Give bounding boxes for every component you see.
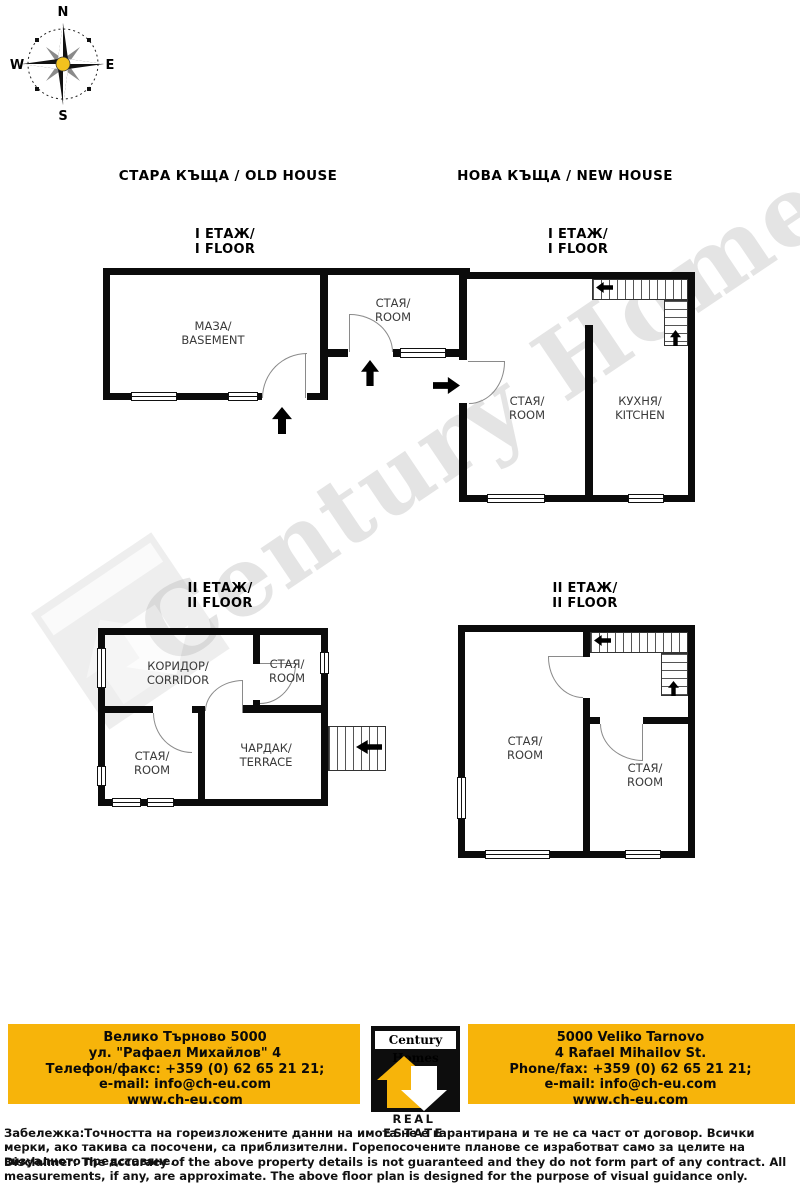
contact-email: e-mail: info@ch-eu.com	[8, 1077, 362, 1093]
compass-w-label: W	[10, 58, 24, 73]
door-arc	[600, 724, 643, 761]
door-panel	[642, 724, 643, 761]
floor-plan-page: Century Homes N W E S СТАРА КЪЩА / OLD H…	[0, 0, 800, 1184]
old-house-floor2-label: II ЕТАЖ/ II FLOOR	[150, 581, 290, 611]
wall	[458, 625, 695, 632]
contact-line: ул. "Рафаел Михайлов" 4	[8, 1046, 362, 1062]
new-house-title: НОВА КЪЩА / NEW HOUSE	[420, 168, 710, 184]
window	[485, 850, 550, 859]
room-label: СТАЯ/ ROOM	[475, 735, 575, 762]
contact-line: Велико Търново 5000	[8, 1030, 362, 1046]
compass-s-label: S	[58, 109, 67, 124]
wall	[643, 717, 695, 724]
logo-name-label: Century Homes	[375, 1031, 456, 1049]
disclaimer-english: Disclaimer: The accuracy of the above pr…	[4, 1156, 797, 1184]
old-house-title: СТАРА КЪЩА / OLD HOUSE	[83, 168, 373, 184]
century-homes-logo: Century Homes REAL ESTATE	[360, 1020, 468, 1128]
old-house-floor1-label: I ЕТАЖ/ I FLOOR	[155, 227, 295, 257]
door-arc	[548, 657, 583, 698]
logo-arrows-icon	[371, 1050, 460, 1112]
wall	[688, 625, 695, 858]
contact-line: 5000 Veliko Tarnovo	[466, 1030, 795, 1046]
compass-rose-icon: N W E S	[8, 2, 118, 127]
contact-website: www.ch-eu.com	[8, 1093, 362, 1109]
window	[457, 777, 466, 819]
new-house-floor2-label: II ЕТАЖ/ II FLOOR	[515, 581, 655, 611]
compass-n-label: N	[58, 5, 69, 20]
contact-line: Phone/fax: +359 (0) 62 65 21 21;	[466, 1062, 795, 1078]
wall	[583, 717, 600, 724]
door-panel	[548, 656, 583, 657]
logo-tagline: REAL ESTATE	[360, 1112, 468, 1140]
contact-block-en: 5000 Veliko Tarnovo 4 Rafael Mihailov St…	[466, 1030, 795, 1109]
contact-line: Телефон/факс: +359 (0) 62 65 21 21;	[8, 1062, 362, 1078]
contact-website: www.ch-eu.com	[466, 1093, 795, 1109]
wall	[583, 625, 590, 657]
compass-e-label: E	[106, 58, 115, 73]
window	[625, 850, 661, 859]
new-house-floor1-label: I ЕТАЖ/ I FLOOR	[508, 227, 648, 257]
wall	[458, 625, 465, 858]
contact-block-bg: Велико Търново 5000 ул. "Рафаел Михайлов…	[8, 1030, 362, 1109]
contact-line: 4 Rafael Mihailov St.	[466, 1046, 795, 1062]
contact-email: e-mail: info@ch-eu.com	[466, 1077, 795, 1093]
logo-square: Century Homes	[371, 1026, 460, 1112]
room-label: СТАЯ/ ROOM	[595, 762, 695, 789]
